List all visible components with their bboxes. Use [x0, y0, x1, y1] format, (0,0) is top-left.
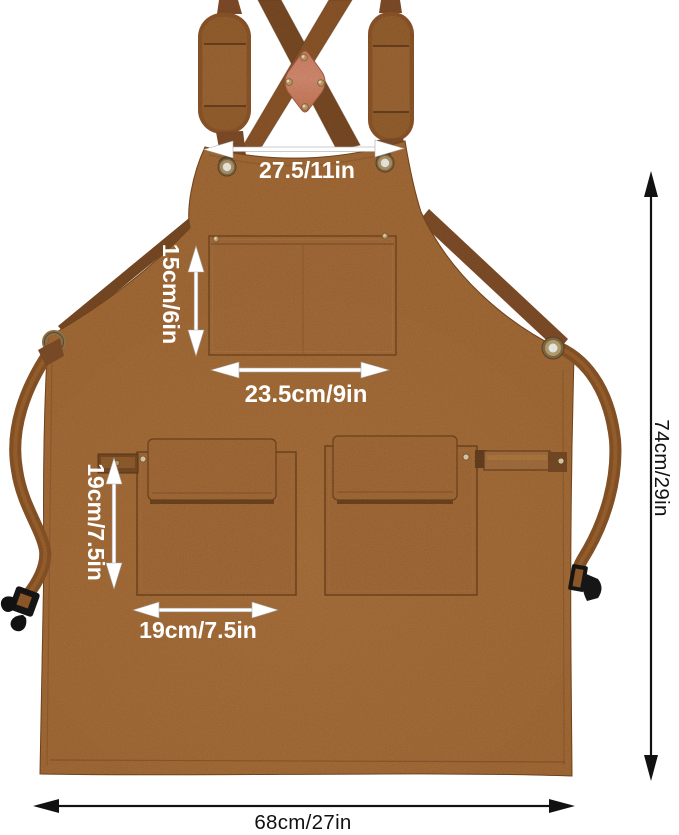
svg-text:19cm/7.5in: 19cm/7.5in: [139, 617, 257, 643]
svg-text:74cm/29in: 74cm/29in: [650, 419, 673, 516]
svg-text:68cm/27in: 68cm/27in: [254, 811, 351, 834]
svg-text:19cm/7.5in: 19cm/7.5in: [83, 463, 109, 581]
svg-text:23.5cm/9in: 23.5cm/9in: [245, 381, 368, 408]
svg-text:15cm/6in: 15cm/6in: [158, 244, 184, 345]
svg-text:27.5/11in: 27.5/11in: [259, 157, 355, 183]
